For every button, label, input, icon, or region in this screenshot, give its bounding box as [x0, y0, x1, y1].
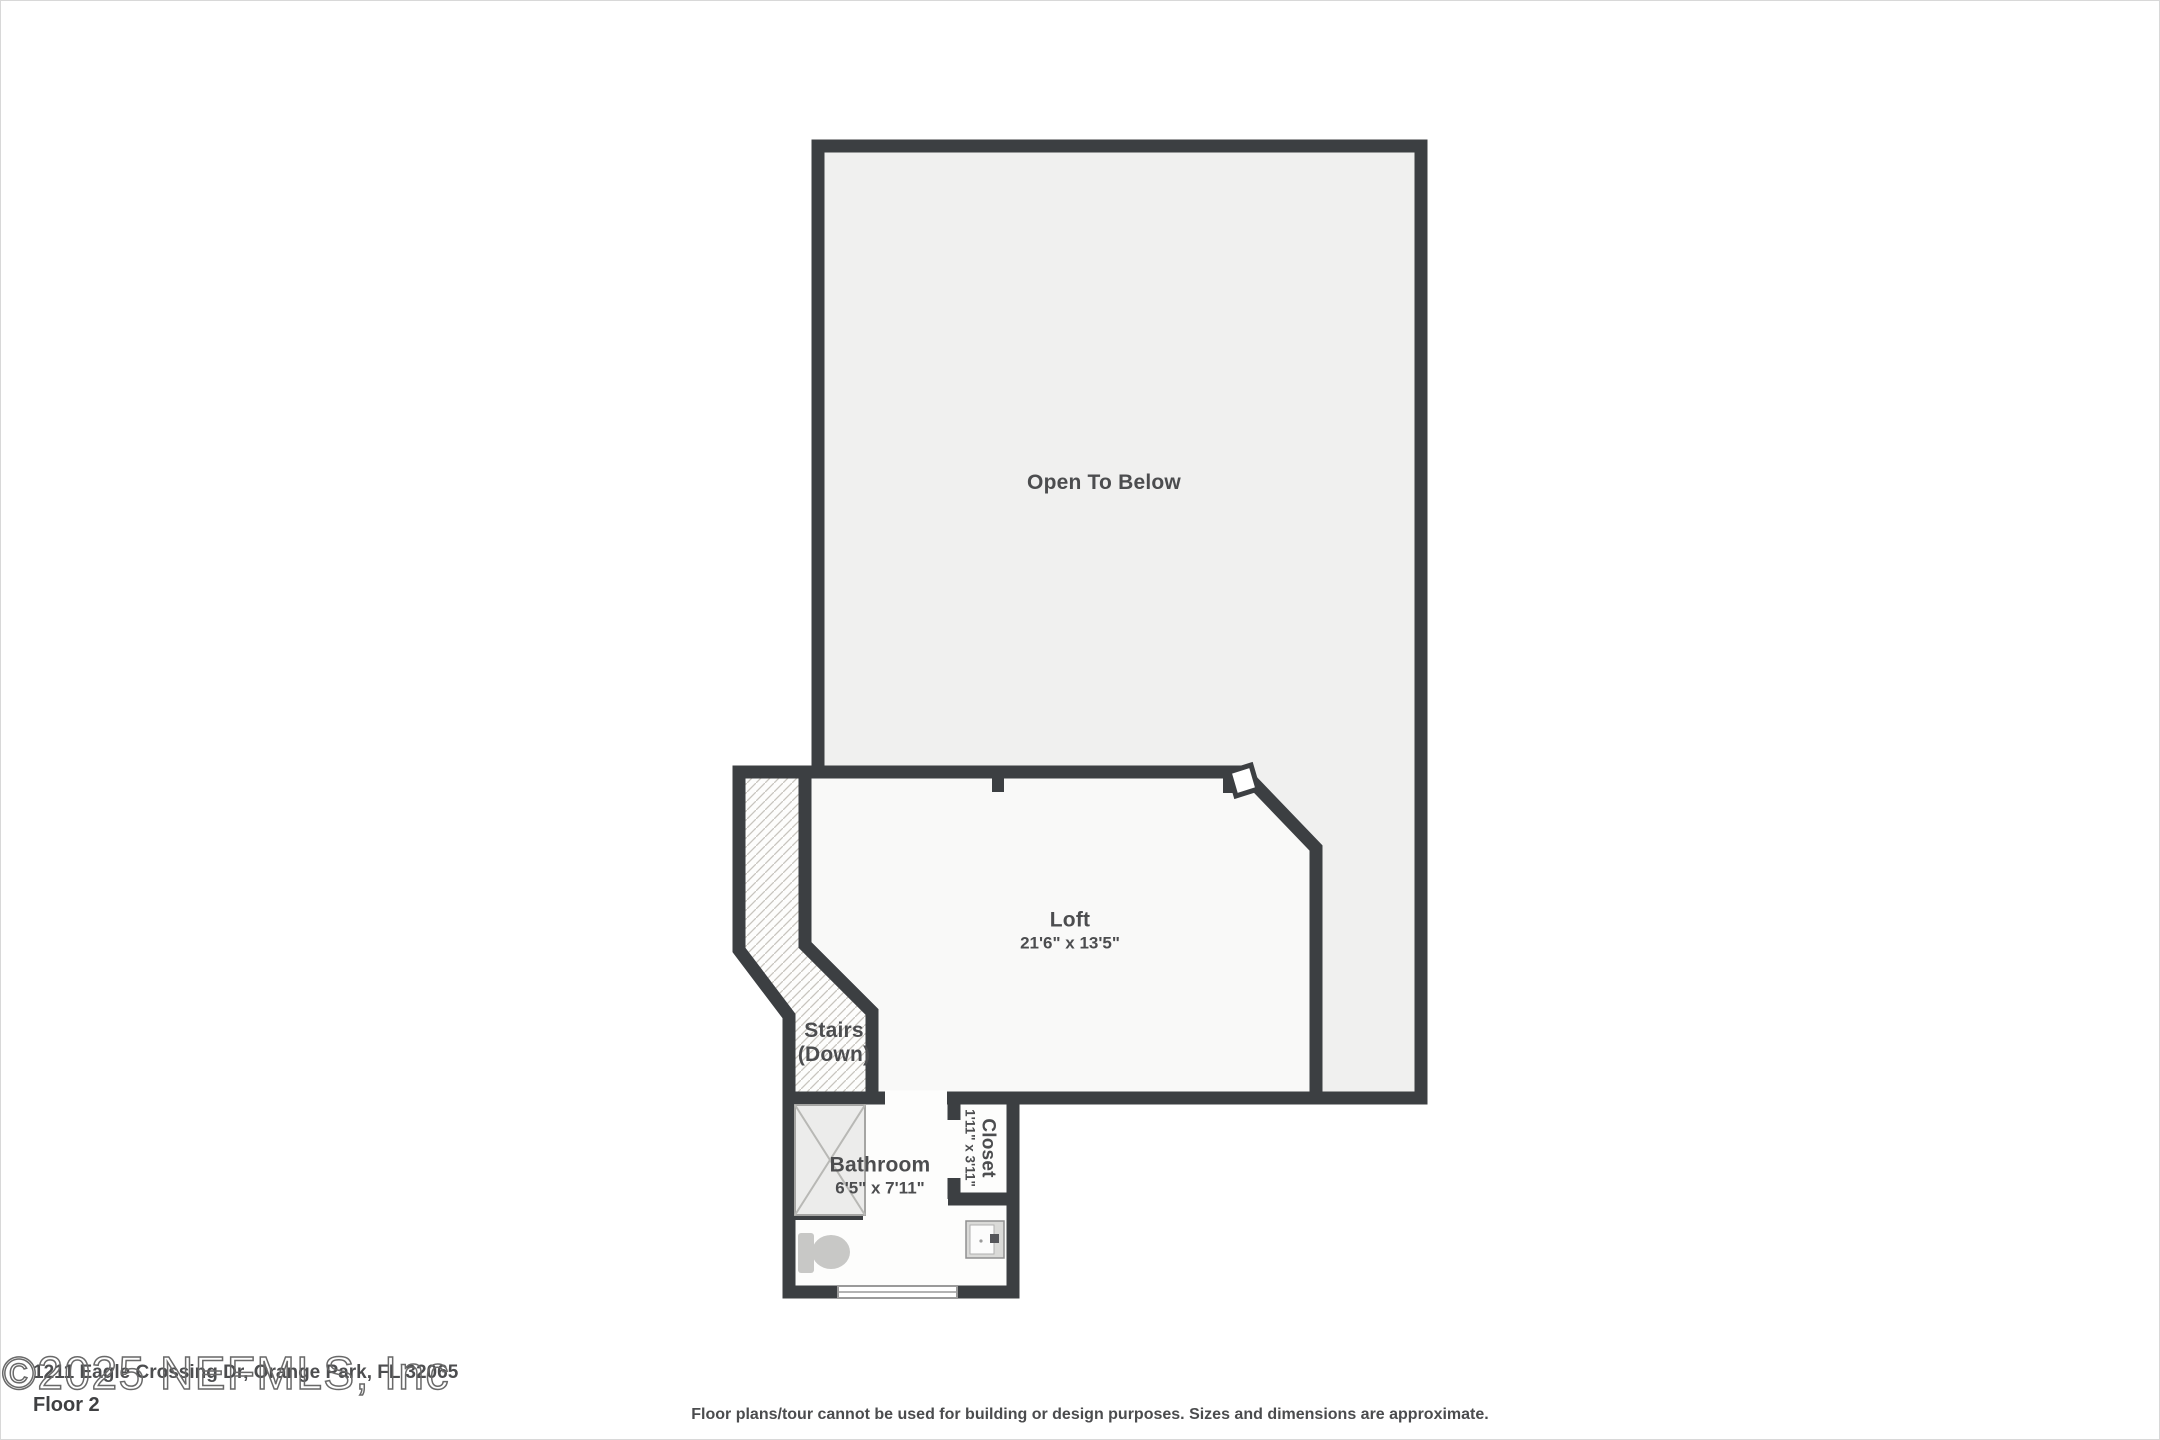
closet-dimensions: 1'11" x 3'11" — [962, 1109, 978, 1187]
open-to-below-name: Open To Below — [1027, 471, 1181, 495]
room-label-bathroom: Bathroom 6'5" x 7'11" — [830, 1154, 931, 1199]
closet-name: Closet — [978, 1109, 999, 1187]
window-icon — [838, 1286, 957, 1298]
sink-icon — [966, 1221, 1004, 1258]
stairs-name-line1: Stairs — [798, 1019, 870, 1043]
railing-stub — [992, 776, 1004, 792]
closet-door-opening — [947, 1120, 962, 1178]
mls-watermark: ©2025 NEFMLS, Inc — [2, 1346, 450, 1400]
floor-plan-page: Open To Below Loft 21'6" x 13'5" Stairs … — [0, 0, 2160, 1440]
bathroom-door-opening — [885, 1091, 947, 1106]
loft-dimensions: 21'6" x 13'5" — [1020, 933, 1120, 954]
loft-name: Loft — [1020, 909, 1120, 933]
bathroom-name: Bathroom — [830, 1154, 931, 1178]
bathroom-dimensions: 6'5" x 7'11" — [830, 1178, 931, 1199]
room-label-loft: Loft 21'6" x 13'5" — [1020, 909, 1120, 954]
stairs-name-line2: (Down) — [798, 1043, 870, 1067]
floor-plan-drawing — [0, 0, 2160, 1440]
room-label-stairs: Stairs (Down) — [798, 1019, 870, 1067]
door-swing-marker — [1229, 765, 1258, 796]
room-label-open-to-below: Open To Below — [1027, 471, 1181, 495]
room-label-closet: Closet 1'11" x 3'11" — [962, 1109, 999, 1187]
disclaimer-text: Floor plans/tour cannot be used for buil… — [0, 1406, 2160, 1424]
